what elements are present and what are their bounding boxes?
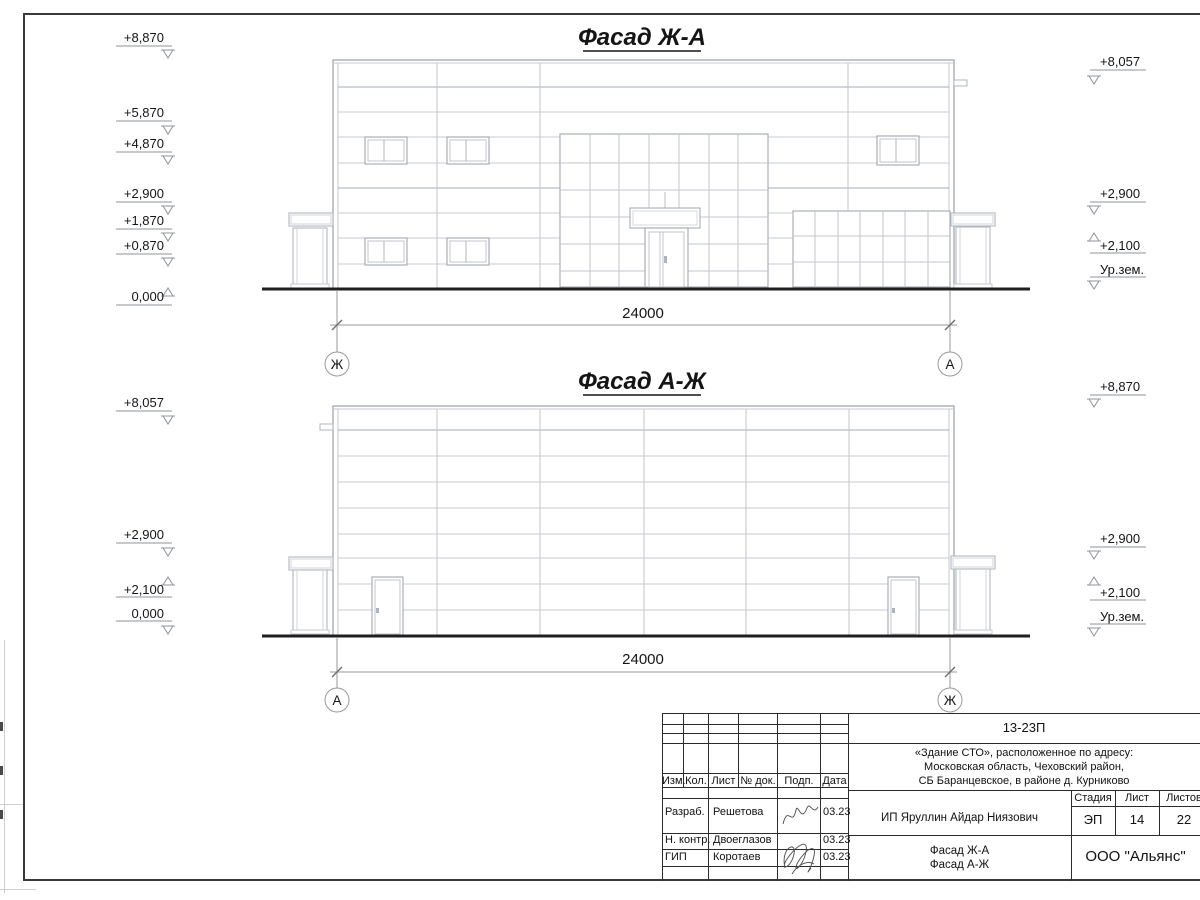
sheets-value: 22 [1159, 813, 1200, 826]
elevation-label: +2,900 [124, 186, 164, 201]
roof-pipe [954, 80, 967, 86]
tb-line [848, 790, 1200, 791]
col-header-data: Дата [821, 775, 848, 788]
elevation-label: 0,000 [131, 289, 164, 304]
elevation-labels-left-f2: +8,057 +2,900 +2,100 0,000 [124, 395, 164, 621]
door-handle [892, 608, 895, 613]
window [447, 238, 489, 265]
door-handle [664, 256, 667, 263]
entrance-door [645, 228, 688, 287]
elevation-labels-right-f1: +8,057 +2,900 +2,100 Ур.зем. [1100, 54, 1144, 277]
drawing-sheet: 24000 Ж А Фасад Ж-А +8,870 [0, 0, 1200, 900]
elevation-label: +1,870 [124, 213, 164, 228]
col-header-list: Лист [709, 775, 738, 788]
sheet-label: Лист [1115, 792, 1159, 805]
col-header-kol: Кол. [684, 775, 708, 788]
service-door [888, 577, 919, 636]
elevation-marks-left-f2 [116, 411, 175, 634]
elevation-label: +5,870 [124, 105, 164, 120]
row-date: 03.23 [823, 834, 851, 847]
curtain-wall [560, 134, 768, 287]
porch-left [289, 213, 333, 288]
axis-letter: А [945, 357, 954, 372]
roof-pipe [320, 424, 333, 430]
row-role: Н. контр. [665, 834, 710, 847]
signature [784, 844, 814, 874]
porch-right [951, 556, 995, 634]
elevation-label: +4,870 [124, 136, 164, 151]
window [365, 238, 407, 265]
col-header-ndok: № док. [739, 775, 777, 788]
elevation-marks-right-f1 [1087, 70, 1146, 289]
row-date: 03.23 [823, 806, 851, 819]
row-name: Двоеглазов [713, 834, 771, 847]
row-date: 03.23 [823, 851, 851, 864]
dimension-f2 [325, 638, 962, 712]
door-handle [376, 608, 379, 613]
col-header-izm: Изм. [662, 775, 684, 788]
tb-line [662, 743, 1200, 744]
axis-letter: А [332, 693, 341, 708]
elevation-label: 0,000 [131, 606, 164, 621]
elevation-label: +8,057 [124, 395, 164, 410]
axis-letter: Ж [331, 357, 344, 372]
elevation-label: Ур.зем. [1100, 609, 1144, 624]
elevation-label: +2,900 [1100, 531, 1140, 546]
dimension-text: 24000 [622, 651, 664, 668]
window [877, 136, 919, 165]
window [365, 137, 407, 164]
elevation-label: +2,100 [1100, 238, 1140, 253]
tb-line [662, 713, 1200, 714]
company-name: ООО "Альянс" [1071, 850, 1200, 863]
facade-zh-a: 24000 Ж А Фасад Ж-А +8,870 [116, 24, 1146, 376]
elevation-label: +2,100 [124, 582, 164, 597]
elevation-label: +2,100 [1100, 585, 1140, 600]
elevation-marks-left-f1 [116, 46, 175, 305]
sheet-title-line1: Фасад Ж-А [848, 845, 1071, 858]
dimension-text: 24000 [622, 305, 664, 322]
elevation-labels-left-f1: +8,870 +5,870 +4,870 +2,900 +1,870 +0,87… [124, 30, 164, 304]
elevation-label: Ур.зем. [1100, 262, 1144, 277]
service-door [372, 577, 403, 636]
tb-line [1071, 806, 1200, 807]
elevation-label: +0,870 [124, 238, 164, 253]
client-name: ИП Яруллин Айдар Ниязович [848, 812, 1071, 825]
project-address-line2: Московская область, Чеховский район, [848, 761, 1200, 774]
elevation-label: +8,870 [124, 30, 164, 45]
facade-a-zh: 24000 А Ж Фасад А-Ж +8,057 +2,900 +2,100 [116, 368, 1146, 712]
row-name: Коротаев [713, 851, 761, 864]
row-role: Разраб. [665, 806, 705, 819]
signature-scribbles [778, 798, 821, 880]
elevation-label: +2,900 [1100, 186, 1140, 201]
dimension-f1 [325, 291, 962, 376]
elevation-label: +2,900 [124, 527, 164, 542]
stage-value: ЭП [1071, 813, 1115, 826]
tb-line [708, 713, 709, 881]
tb-line [662, 713, 663, 881]
sheets-label: Листов [1159, 792, 1200, 805]
window [447, 137, 489, 164]
project-address-line1: «Здание СТО», расположенное по адресу: [848, 747, 1200, 760]
sheet-title-line2: Фасад А-Ж [848, 859, 1071, 872]
elevation-labels-right-f2: +8,870 +2,900 +2,100 Ур.зем. [1100, 379, 1144, 624]
tb-line [848, 835, 1200, 836]
stage-label: Стадия [1071, 792, 1115, 805]
elevation-label: +8,870 [1100, 379, 1140, 394]
facade2-title: Фасад А-Ж [578, 368, 708, 395]
elevation-label: +8,057 [1100, 54, 1140, 69]
glazed-band [793, 211, 950, 287]
porch-left [289, 557, 333, 634]
row-name: Решетова [713, 806, 763, 819]
sheet-value: 14 [1115, 813, 1159, 826]
project-address-line3: СБ Баранцевское, в районе д. Курниково [848, 775, 1200, 788]
doc-number: 13-23П [848, 721, 1200, 734]
col-header-podp: Подп. [778, 775, 820, 788]
axis-letter: Ж [944, 693, 957, 708]
row-role: ГИП [665, 851, 687, 864]
facade1-title: Фасад Ж-А [578, 24, 706, 51]
signature [783, 806, 818, 824]
porch-right [951, 213, 995, 288]
